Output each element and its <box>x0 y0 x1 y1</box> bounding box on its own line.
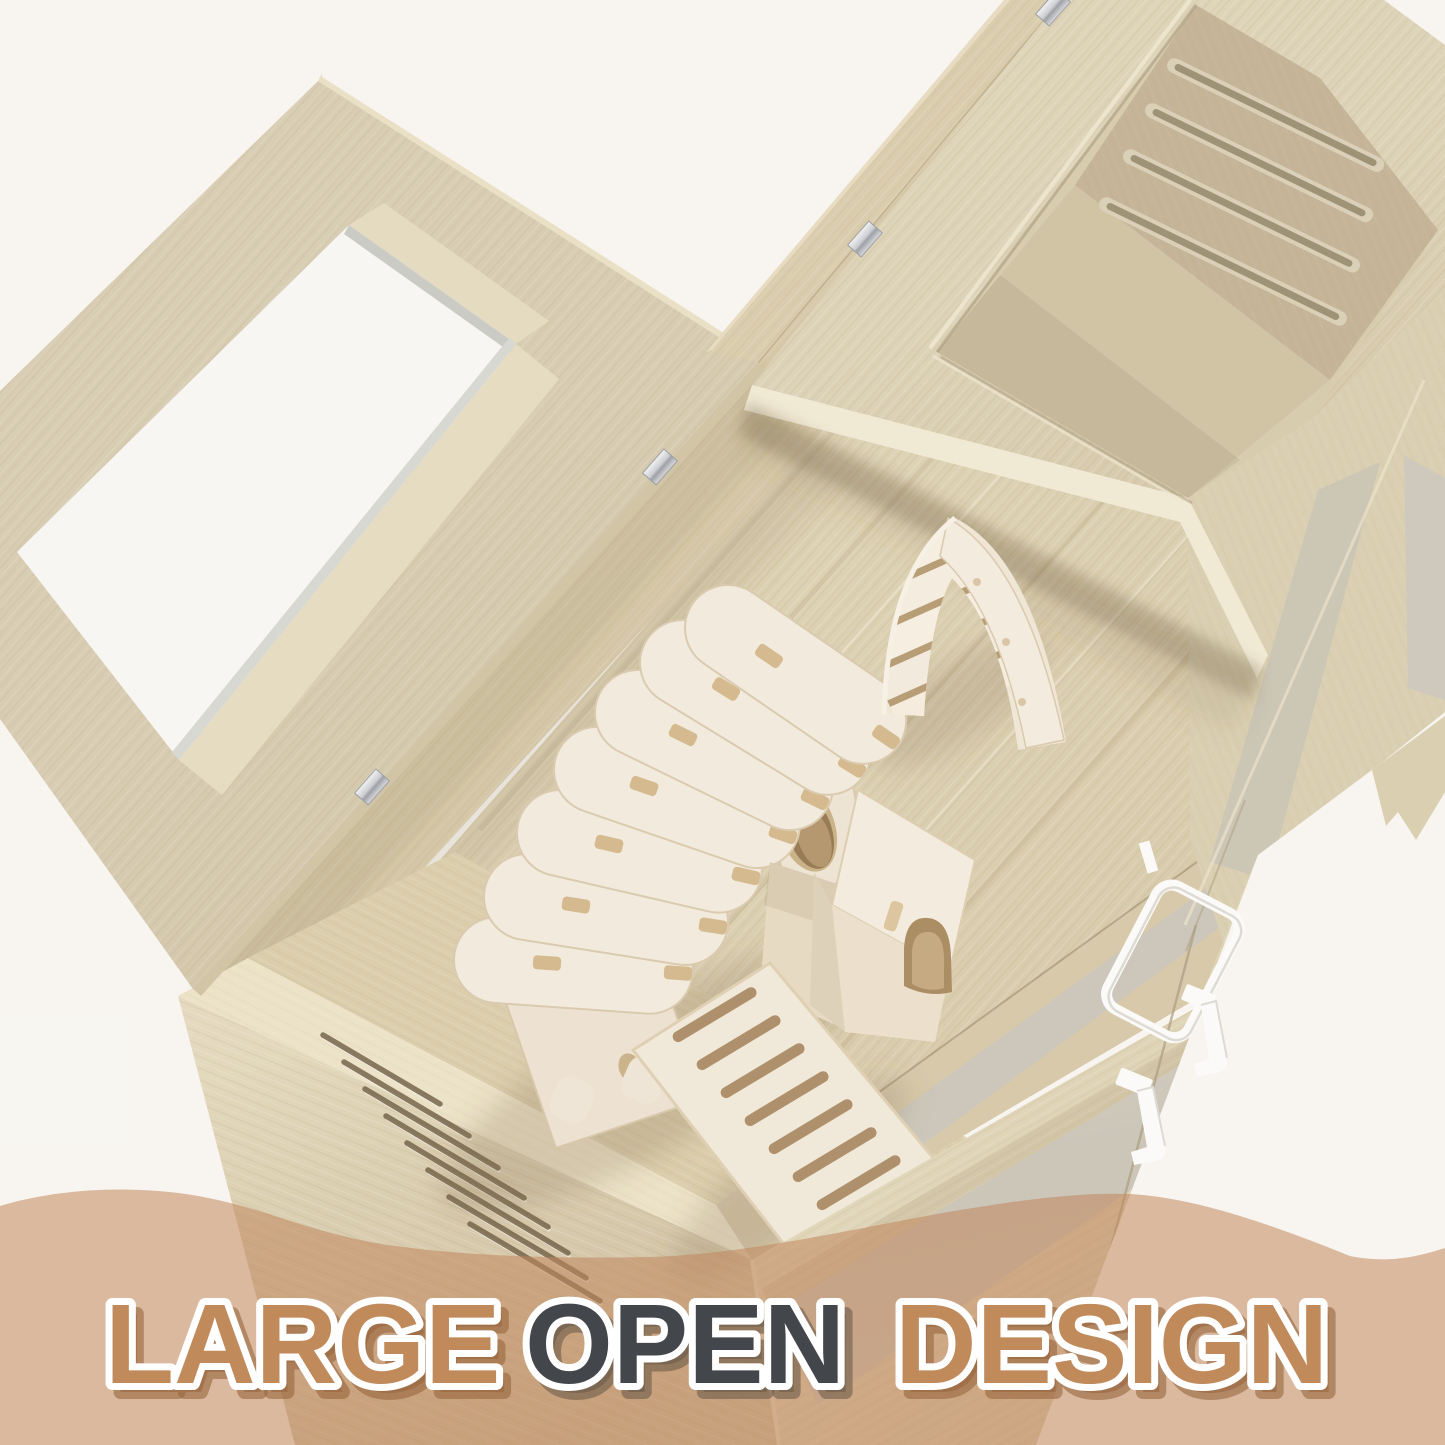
svg-text:OPEN: OPEN <box>525 1281 845 1407</box>
svg-text:LARGE: LARGE <box>105 1281 501 1407</box>
svg-text:DESIGN: DESIGN <box>895 1281 1328 1407</box>
